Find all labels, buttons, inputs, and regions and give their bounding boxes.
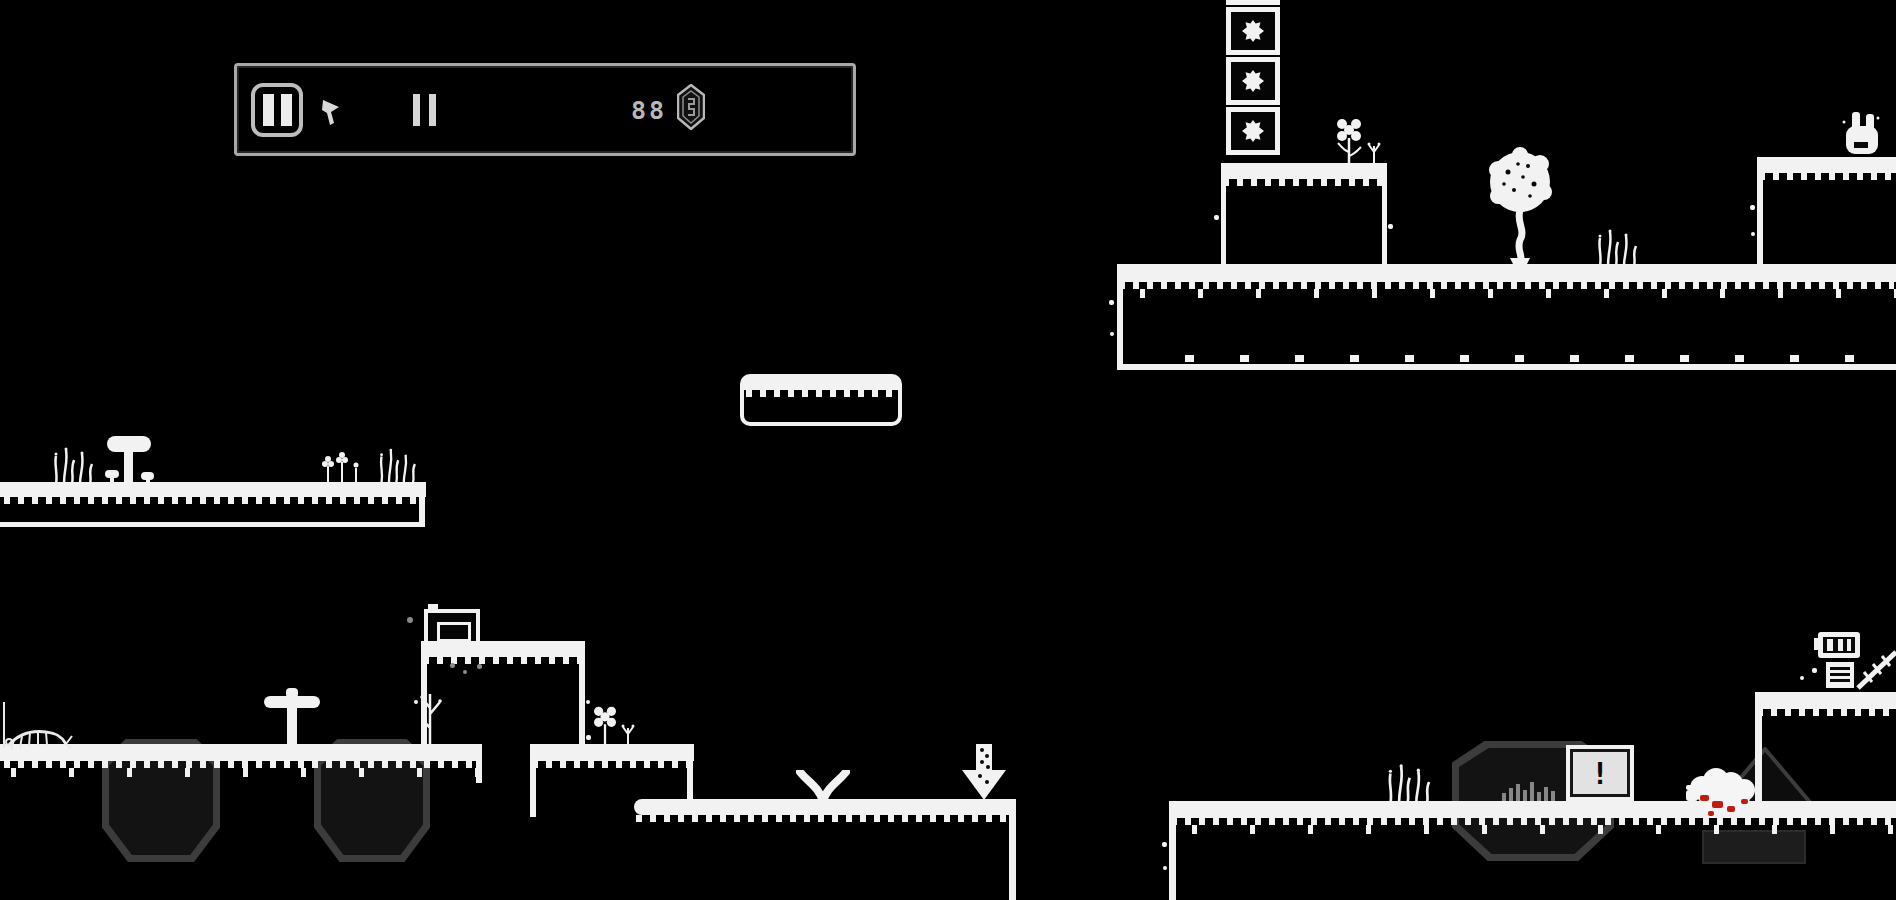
pause-icon <box>281 94 292 126</box>
wall-sprout <box>1163 866 1167 870</box>
dust-particle <box>463 670 467 674</box>
alert-sign: ! <box>1570 749 1630 797</box>
pause-button[interactable] <box>251 83 303 137</box>
hud-bar: 88 <box>234 63 856 156</box>
blood-stain <box>1741 799 1748 804</box>
platform-bottom-right <box>1169 801 1896 818</box>
crate <box>1226 57 1280 105</box>
platform-raised <box>1221 163 1387 179</box>
equalizer-bar <box>1544 787 1548 801</box>
wall-sprout <box>1162 842 1167 847</box>
gem-icon <box>677 84 705 130</box>
wall-sprout <box>1110 332 1114 336</box>
down-arrow-sign <box>960 744 1008 802</box>
particle <box>407 617 413 623</box>
platform-wall <box>1221 179 1226 267</box>
wall-sprout <box>1388 224 1393 229</box>
platform-floating <box>740 374 902 426</box>
blood-stain <box>1727 806 1735 812</box>
blood-stain <box>1708 811 1714 816</box>
mushroom-flat <box>262 688 322 752</box>
dead-bush <box>0 696 82 752</box>
platform-wall <box>1382 179 1387 267</box>
small-flowers <box>320 452 370 484</box>
dark-block <box>1702 830 1806 864</box>
star-icon <box>1242 70 1264 92</box>
equalizer-bar <box>1502 793 1506 801</box>
platform-right-mid <box>1755 692 1896 709</box>
platform-left <box>0 482 426 497</box>
debris <box>1800 676 1804 680</box>
wall-sprout <box>1751 232 1755 236</box>
platform-wall <box>1169 818 1176 900</box>
wall-sprout <box>1109 300 1114 305</box>
platform-wall <box>1757 173 1763 266</box>
game-canvas[interactable]: 88 <box>0 0 1896 900</box>
equalizer-bar <box>1516 784 1520 801</box>
dust-particle <box>450 663 455 668</box>
cursor-icon <box>321 99 341 127</box>
equalizer-bar <box>1509 788 1513 801</box>
blood-stain <box>1700 795 1709 801</box>
equalizer-bar <box>1537 792 1541 801</box>
gem-counter: 88 <box>631 98 667 123</box>
mushroom <box>104 432 156 484</box>
flower <box>1330 116 1368 164</box>
equalizer-bar <box>1551 791 1555 801</box>
platform-bottom <box>1117 364 1896 370</box>
equalizer-bar <box>1530 782 1534 801</box>
wall-grass <box>418 688 448 748</box>
platform-bottom-ticks <box>1185 355 1896 362</box>
sign-pole <box>1596 797 1604 803</box>
platform-main <box>1117 264 1896 282</box>
robot-creature <box>1814 630 1896 694</box>
v-plant <box>796 770 850 802</box>
tv-monitor <box>424 609 480 645</box>
platform-wall <box>1009 815 1016 900</box>
crate <box>1226 7 1280 55</box>
platform-bottom <box>0 522 425 527</box>
bunny-creature <box>1842 112 1882 158</box>
grass-tuft <box>376 444 426 484</box>
crate-partial <box>1226 0 1280 5</box>
crate <box>1226 107 1280 155</box>
grass-tuft <box>50 444 104 484</box>
sprout <box>1366 136 1382 164</box>
platform-ledge <box>1757 157 1896 173</box>
platform-wall <box>530 761 536 817</box>
equalizer-bar <box>1523 790 1527 801</box>
tv-screen <box>437 622 471 642</box>
tree <box>1478 146 1562 266</box>
grass-tuft <box>1594 226 1648 266</box>
debris <box>1812 668 1817 673</box>
platform-wall <box>687 761 693 803</box>
pause-bars-icon <box>413 94 436 126</box>
blood-stain <box>1712 801 1723 808</box>
flower <box>585 704 625 748</box>
star-icon <box>1242 20 1264 42</box>
sprout <box>620 718 636 748</box>
platform-wall <box>1117 282 1123 370</box>
grass-tuft <box>1384 760 1442 804</box>
wall-sprout <box>1750 205 1755 210</box>
alert-sign-label: ! <box>1591 756 1609 791</box>
sheep-creature <box>1684 768 1766 812</box>
platform-wall <box>476 761 482 783</box>
star-icon <box>1242 120 1264 142</box>
wall-sprout <box>1214 215 1219 220</box>
pause-icon <box>263 94 274 126</box>
dust-particle <box>477 664 482 669</box>
